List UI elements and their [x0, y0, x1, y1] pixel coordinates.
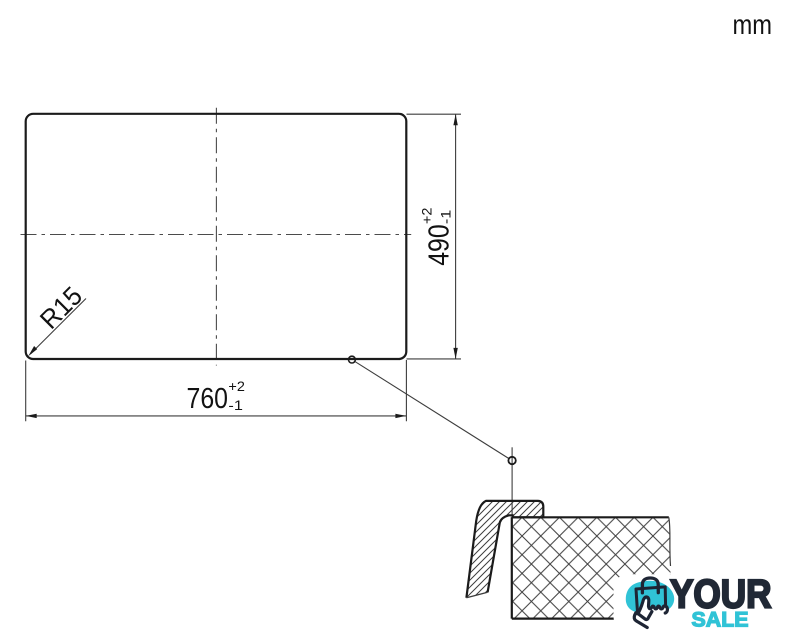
- svg-text:-1: -1: [228, 398, 243, 413]
- svg-text:SALE: SALE: [692, 607, 749, 631]
- svg-text:-1: -1: [439, 210, 454, 225]
- svg-text:760: 760: [187, 383, 229, 415]
- svg-text:mm: mm: [733, 9, 773, 40]
- svg-text:490: 490: [424, 224, 456, 266]
- svg-text:+2: +2: [420, 208, 435, 225]
- svg-text:+2: +2: [228, 379, 245, 394]
